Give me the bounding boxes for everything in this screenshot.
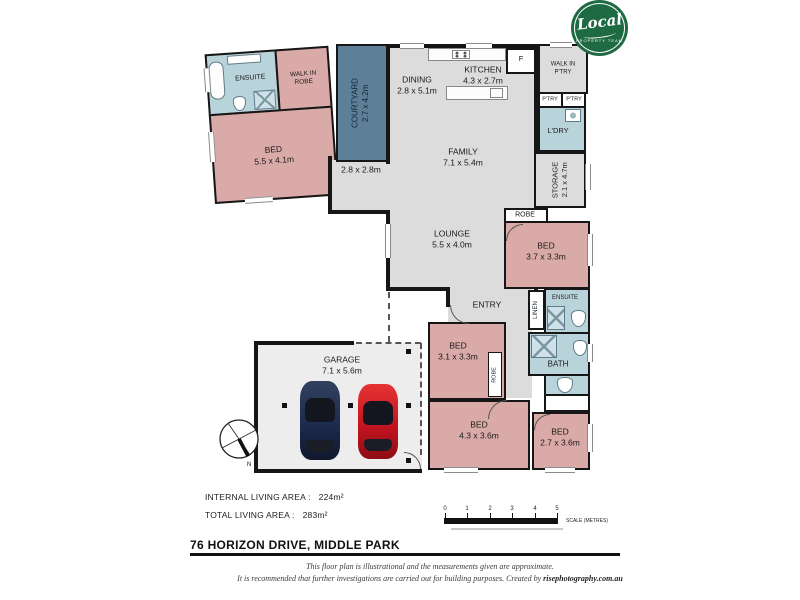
scale-tick-label: 4 [533, 506, 536, 512]
photography-credit: risephotography.com.au [543, 574, 623, 583]
room-name: BED [449, 341, 466, 352]
shower-icon [253, 90, 276, 110]
internal-living-area-value: 224m² [319, 492, 344, 502]
scale-tick-label: 1 [465, 506, 468, 512]
room-name: ENSUITE [552, 294, 578, 302]
internal-living-area-label: INTERNAL LIVING AREA : [205, 492, 311, 502]
scale-tick-label: 2 [488, 506, 491, 512]
total-living-area-label: TOTAL LIVING AREA : [205, 510, 295, 520]
room-name: GARAGE [324, 355, 360, 366]
post [348, 403, 353, 408]
master-suite-block: ENSUITE WALK IN ROBE BED 5.5 x 4.1m [205, 46, 339, 204]
scale-bar-shadow [451, 528, 563, 530]
disclaimer: This floor plan is illustrational and th… [100, 561, 760, 584]
room-label-laundry: L'DRY [547, 126, 568, 136]
room-name: BED [470, 420, 487, 431]
room-name: BED [537, 241, 554, 252]
property-address: 76 HORIZON DRIVE, MIDDLE PARK [190, 538, 400, 552]
wall [386, 287, 450, 291]
window [587, 344, 593, 362]
room-dims: 7.1 x 5.6m [322, 366, 362, 377]
room-dims: 2.7 x 4.2m [361, 78, 371, 128]
room-label-ensuite2: ENSUITE [552, 294, 578, 302]
room-name: FAMILY [448, 147, 478, 158]
room-label-pantry2: P'TRY [566, 96, 582, 103]
room-name: ROBE [515, 210, 535, 219]
shower-icon [547, 306, 565, 330]
room-name: ROBE [491, 367, 498, 383]
window [545, 467, 575, 473]
room-dims: 5.5 x 4.0m [432, 240, 472, 251]
room-label-robe-bed3: ROBE [491, 367, 498, 383]
wall [254, 469, 422, 473]
wall [328, 156, 332, 214]
room-label-bed3: BED 3.1 x 3.3m [438, 341, 478, 364]
room-label-bed5: BED 2.7 x 3.6m [540, 427, 580, 450]
wall [254, 341, 354, 345]
room-label-courtyard: COURTYARD 2.7 x 4.2m [351, 78, 372, 128]
shower-icon [531, 335, 557, 358]
room-label-garage: GARAGE 7.1 x 5.6m [322, 355, 362, 378]
room-name: LINEN [533, 301, 541, 319]
room-name: BED [551, 427, 568, 438]
washer-icon [565, 109, 581, 122]
room-dims: 2.1 x 4.7m [560, 162, 570, 199]
car-navy [300, 381, 340, 460]
room-name: F [519, 54, 524, 64]
porch-dashed-edge [388, 292, 390, 342]
window [466, 43, 492, 49]
agency-logo: Local PROPERTY TEAM [571, 0, 628, 56]
scale-tick-label: 5 [555, 506, 558, 512]
window [585, 164, 591, 190]
room-dims: 7.1 x 5.4m [443, 158, 483, 169]
window [444, 467, 478, 473]
window [245, 196, 273, 204]
room-dims: 2.8 x 5.1m [397, 86, 437, 97]
room-name: P'TRY [566, 96, 582, 103]
car-red [358, 384, 398, 459]
room-name: WALK IN P'TRY [546, 62, 580, 77]
address-rule [190, 553, 620, 556]
disclaimer-line1: This floor plan is illustrational and th… [100, 561, 760, 573]
room-name: KITCHEN [464, 65, 501, 76]
post [406, 349, 411, 354]
car-rear-window [364, 439, 392, 451]
post [406, 403, 411, 408]
post [406, 458, 411, 463]
sink-icon [490, 88, 503, 98]
car-rear-window [306, 440, 334, 452]
compass-north-label: N [247, 462, 251, 468]
scale-bar: 0 1 2 3 4 5 SCALE (METRES) [444, 506, 594, 536]
room-label-kitchen: KITCHEN 4.3 x 2.7m [463, 65, 503, 88]
scale-tick-label: 3 [510, 506, 513, 512]
garage-dashed-edge [356, 342, 421, 344]
total-living-area-value: 283m² [303, 510, 328, 520]
car-windshield [305, 398, 335, 422]
floor-plan-page: Local PROPERTY TEAM ENSUITE WALK IN ROBE… [0, 0, 800, 600]
internal-living-area-row: INTERNAL LIVING AREA : 224m² [205, 492, 344, 502]
room-dims: 2.7 x 3.6m [540, 438, 580, 449]
room-label-bed2: BED 3.7 x 3.3m [526, 241, 566, 264]
window [587, 234, 593, 266]
room-name: COURTYARD [351, 78, 361, 128]
room-label-walk-in-robe: WALK IN ROBE [284, 69, 323, 88]
room-name: LOUNGE [434, 229, 470, 240]
compass: N [213, 414, 265, 472]
bathtub-icon [208, 61, 226, 100]
scale-tick-label: 0 [443, 506, 446, 512]
window [400, 43, 424, 49]
room-label-pantry1: P'TRY [542, 96, 558, 103]
window [550, 42, 572, 48]
wall [328, 210, 390, 214]
room-label-fridge: F [519, 54, 524, 64]
room-dims: 4.3 x 3.6m [459, 431, 499, 442]
post [282, 403, 287, 408]
room-label-family: FAMILY 7.1 x 5.4m [443, 147, 483, 170]
room-label-hall: 2.8 x 2.8m [341, 164, 381, 175]
room-label-bath: BATH [548, 360, 569, 371]
room-label-robe-bed2: ROBE [515, 210, 535, 219]
room-name: WALK IN ROBE [284, 69, 323, 88]
room-name: L'DRY [547, 126, 568, 136]
room-label-storage: STORAGE 2.1 x 4.7m [550, 162, 570, 199]
room-label-walk-in-pantry: WALK IN P'TRY [546, 62, 580, 77]
garage-dashed-edge [420, 343, 422, 455]
total-living-area-row: TOTAL LIVING AREA : 283m² [205, 510, 328, 520]
cooktop-icon [452, 50, 470, 59]
window [385, 224, 391, 258]
logo-tagline: PROPERTY TEAM [571, 38, 628, 43]
room-name: P'TRY [542, 96, 558, 103]
scale-units-label: SCALE (METRES) [566, 518, 608, 524]
room-label-bed4: BED 4.3 x 3.6m [459, 420, 499, 443]
window [587, 424, 593, 452]
room-label-linen: LINEN [533, 301, 541, 319]
disclaimer-line2: It is recommended that further investiga… [100, 573, 760, 585]
room-name: ENTRY [473, 299, 502, 310]
room-label-lounge: LOUNGE 5.5 x 4.0m [432, 229, 472, 252]
room-name: BATH [548, 360, 569, 371]
room-name: DINING [402, 75, 432, 86]
room-dims: 3.1 x 3.3m [438, 352, 478, 363]
room-dims: 4.3 x 2.7m [463, 76, 503, 87]
room-label-master-bed: BED 5.5 x 4.1m [253, 143, 294, 169]
room-name: STORAGE [550, 162, 560, 199]
room-dims: 2.8 x 2.8m [341, 164, 381, 175]
car-windshield [363, 401, 393, 425]
wall [446, 287, 450, 307]
robe-bed5 [544, 394, 590, 412]
room-label-entry: ENTRY [473, 299, 502, 310]
room-label-dining: DINING 2.8 x 5.1m [397, 75, 437, 98]
disclaimer-text: It is recommended that further investiga… [237, 574, 543, 583]
scale-bar-rule [444, 518, 558, 524]
room-dims: 3.7 x 3.3m [526, 252, 566, 263]
